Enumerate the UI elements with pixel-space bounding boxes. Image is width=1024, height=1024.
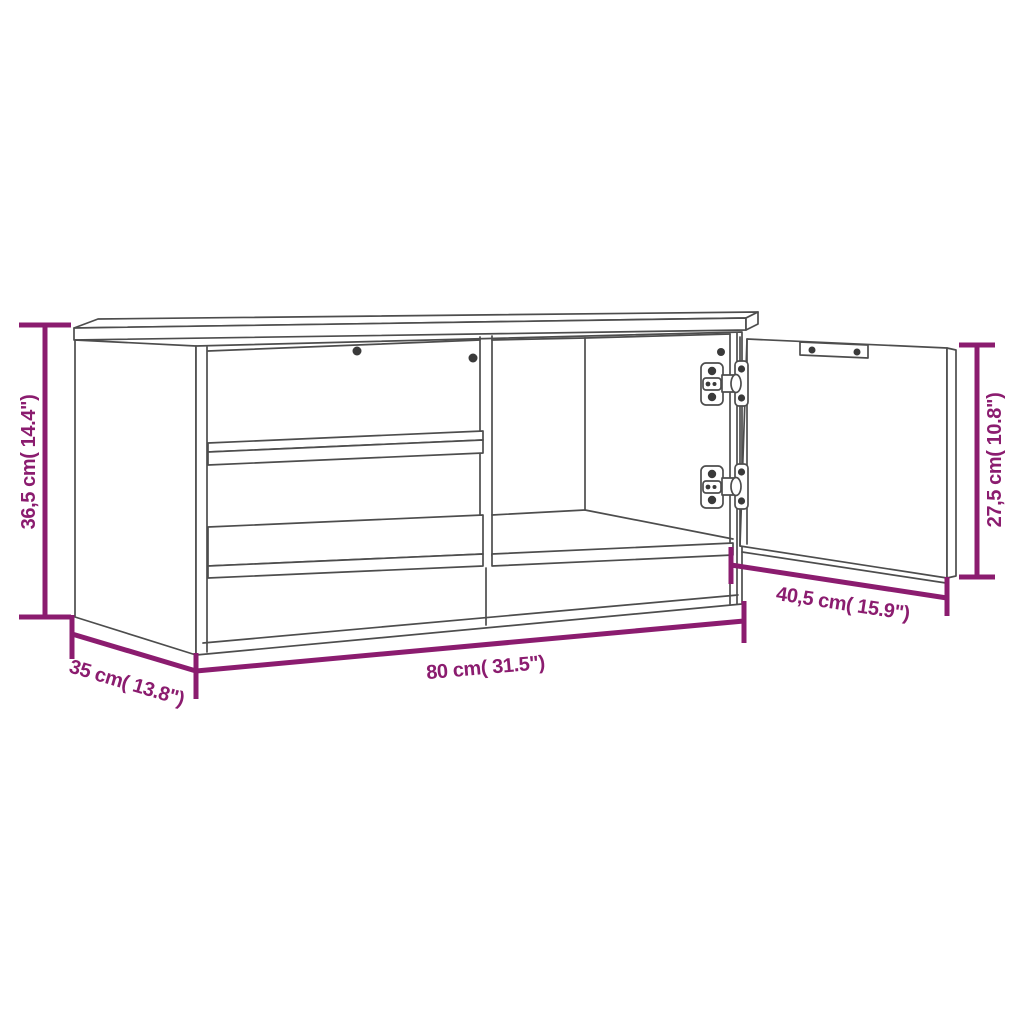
bottom-shelf-left — [208, 515, 483, 578]
screw-hole — [469, 354, 478, 363]
cabinet-front-face — [196, 332, 742, 655]
dim-height-label: 36,5 cm( 14.4") — [18, 395, 40, 530]
screw-hole — [717, 348, 725, 356]
screw-hole — [353, 347, 362, 356]
product-dimension-diagram: 36,5 cm( 14.4") 35 cm( 13.8") 80 cm( 31.… — [0, 0, 1024, 1024]
cabinet-side-panel — [75, 340, 196, 655]
dim-width-label: 80 cm( 31.5") — [425, 652, 545, 684]
cabinet-line-art: 36,5 cm( 14.4") 35 cm( 13.8") 80 cm( 31.… — [0, 0, 1024, 1024]
open-door — [740, 337, 956, 583]
dim-door-height-label: 27,5 cm( 10.8") — [984, 393, 1006, 528]
door-mounting-bracket — [800, 342, 868, 358]
